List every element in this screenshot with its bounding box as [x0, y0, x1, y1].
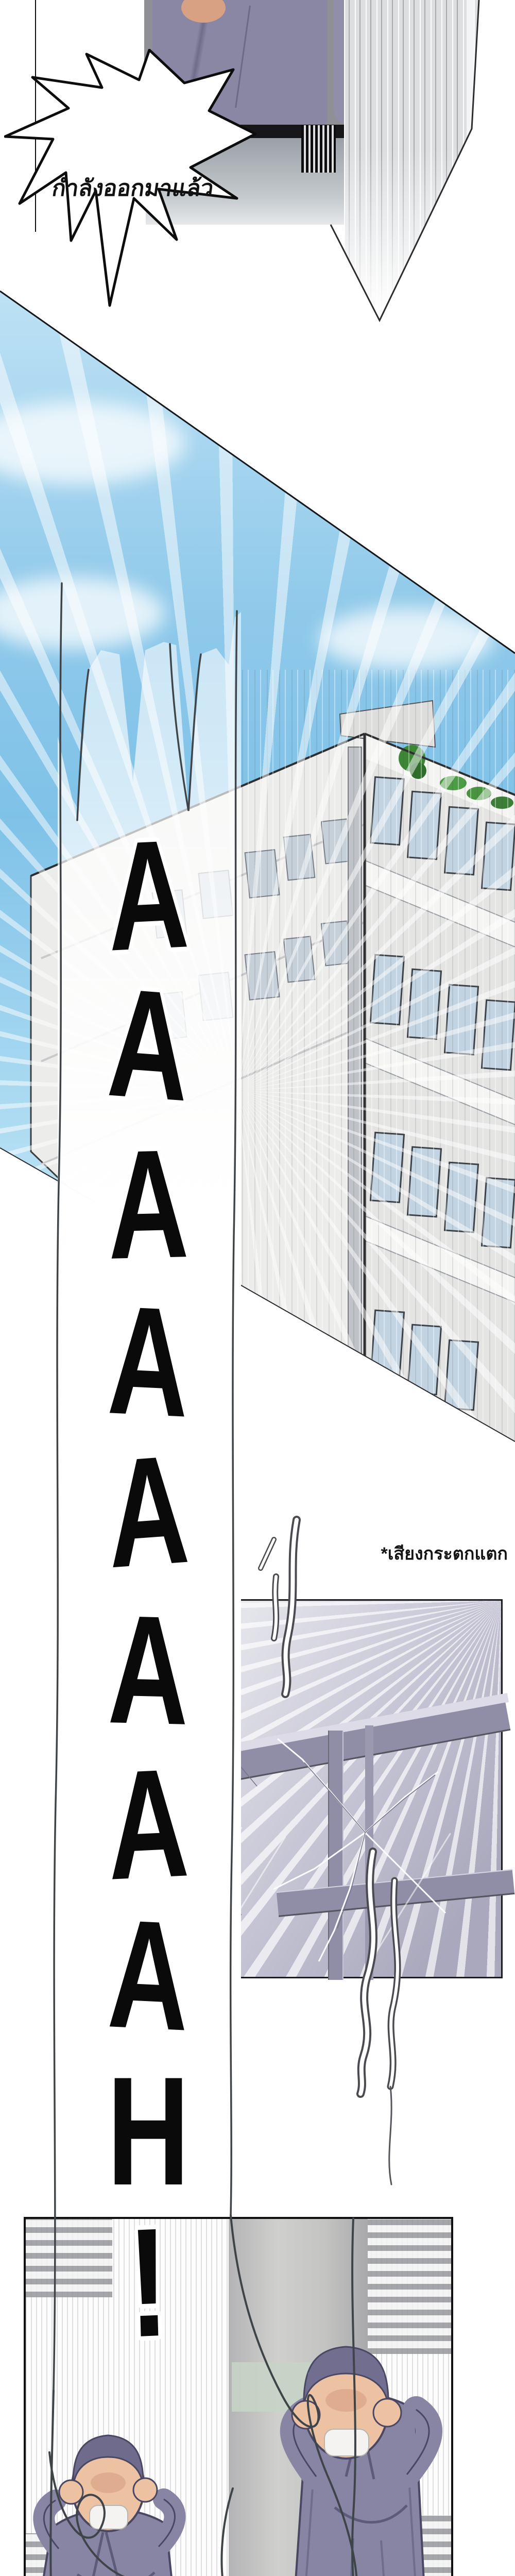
speech-text: กำลังออกมาแล้ว: [27, 170, 238, 206]
scream-letter: H: [102, 2054, 194, 2208]
scream-letter: A: [103, 1591, 194, 1748]
radial-speed-rays: [0, 278, 515, 1473]
blind-slats: [378, 2515, 453, 2576]
scream-letter: A: [102, 1895, 195, 2054]
blind-slats: [26, 2533, 112, 2576]
blind-slats: [365, 2219, 453, 2354]
scream-letter: A: [103, 1126, 194, 1282]
wall-green-band: [232, 2362, 364, 2412]
sfx-caption: *เสียงกระตกแตก: [360, 1539, 508, 1567]
white-fade: [344, 0, 479, 330]
scream-letter: A: [102, 816, 195, 974]
door-frame: [467, 0, 474, 216]
window-mullion: [328, 1731, 344, 1980]
scream-letter: A: [102, 1282, 195, 1440]
window-mullion: [365, 1725, 373, 1980]
scream-letter: A: [101, 964, 196, 1125]
wall-right: [344, 0, 479, 330]
shelf-stripes: [301, 125, 336, 173]
scream-letter: A: [102, 1744, 195, 1903]
scream-letter: !: [97, 2203, 200, 2362]
comic-page: *เสียงกระตกแตก: [0, 0, 515, 2576]
panel-figures-covering-ears: [24, 2217, 453, 2576]
scream-letter: A: [101, 1431, 196, 1591]
